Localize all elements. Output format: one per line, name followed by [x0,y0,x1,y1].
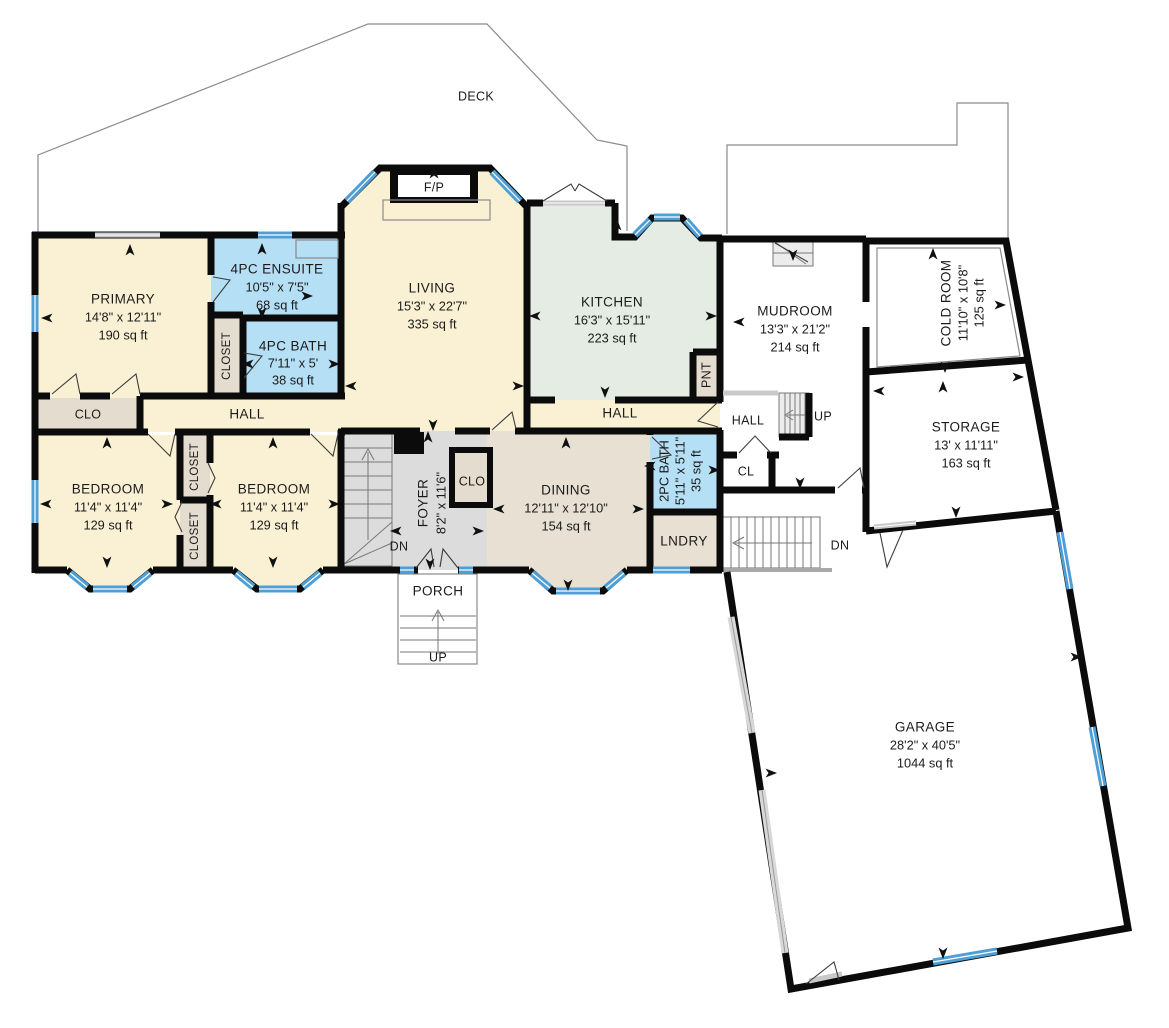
ext-dn-label: DN [831,538,850,552]
living-area: 335 sq ft [407,316,457,331]
direction-arrow [766,769,778,778]
deck-label: DECK [458,89,494,103]
bath4-name: 4PC BATH [259,339,327,354]
bath2-name: 2PC BATH [656,440,671,502]
bath4-dims: 7'11" x 5' [268,355,318,370]
direction-arrow [952,507,961,519]
hall-mud-label: HALL [732,413,764,427]
coldroom-dims: 11'10" x 10'8" [955,265,970,341]
mudroom-room [720,239,866,490]
garage-name: GARAGE [895,720,955,735]
mudroom-dims: 13'3" x 21'2" [760,321,830,336]
dining-dims: 12'11" x 12'10" [524,500,607,515]
cl-label: CL [738,464,755,478]
lndry-label: LNDRY [660,534,708,549]
porch-up-label: UP [429,650,447,664]
coldroom-name: COLD ROOM [939,260,954,347]
bedroom1-area: 129 sq ft [83,517,133,532]
storage-dims: 13' x 11'11" [934,437,998,452]
living-name: LIVING [409,281,456,296]
coldroom-area: 125 sq ft [971,278,986,328]
garage-dims: 28'2" x 40'5" [890,737,960,752]
direction-arrow [939,381,948,393]
bath4-area: 38 sq ft [272,372,314,387]
foyer-dims: 8'2" x 11'6" [433,472,448,534]
direction-arrow [873,387,885,396]
direction-arrow [929,248,938,260]
foyer-wall-chunk [394,432,424,454]
room-fills [35,168,866,591]
ensuite-area: 68 sq ft [256,297,298,312]
primary-name: PRIMARY [91,292,155,307]
mud-up-label: UP [814,409,832,423]
bath2-dims: 5'11" x 5'11" [672,437,687,505]
floor-plan: DECK PRIMARY 14'8" x 12'11" 190 sq ft 4P… [0,0,1169,1023]
porch-label: PORCH [413,584,464,599]
storage-area: 163 sq ft [941,455,991,470]
kitchen-dims: 16'3" x 15'11" [574,312,650,327]
closet-a-label: CLOSET [189,443,201,491]
ensuite-name: 4PC ENSUITE [231,262,324,277]
clo-primary-label: CLO [75,407,102,421]
mudroom-name: MUDROOM [757,304,833,319]
kitchen-area: 223 sq ft [587,330,637,345]
direction-arrow [1013,373,1025,382]
kitchen-name: KITCHEN [581,295,643,310]
mudroom-area: 214 sq ft [770,339,820,354]
pnt-label: PNT [699,362,713,388]
bedroom1-name: BEDROOM [72,482,145,497]
bedroom2-name: BEDROOM [238,482,311,497]
bedroom2-dims: 11'4" x 11'4" [240,499,308,514]
garage-area: 1044 sq ft [897,755,954,770]
storage-name: STORAGE [932,420,1001,435]
primary-dims: 14'8" x 12'11" [85,309,161,324]
fp-label: F/P [424,180,444,194]
floor-plan-page: DECK PRIMARY 14'8" x 12'11" 190 sq ft 4P… [0,0,1169,1023]
dining-area: 154 sq ft [541,518,591,533]
hall-left-label: HALL [229,407,264,422]
closet-b-label: CLOSET [189,512,201,560]
bath2-area: 35 sq ft [688,450,703,492]
foyer-dn-label: DN [390,539,409,553]
ensuite-dims: 10'5" x 7'5" [245,279,308,294]
dining-name: DINING [541,483,591,498]
hall-right-label: HALL [602,406,637,421]
closet-primary-label: CLOSET [221,332,233,380]
living-dims: 15'3" x 22'7" [397,298,467,313]
clo-foyer-label: CLO [459,474,486,488]
direction-arrow [995,301,1007,310]
foyer-name: FOYER [416,479,431,528]
bedroom1-dims: 11'4" x 11'4" [74,499,142,514]
bedroom2-area: 129 sq ft [249,517,299,532]
primary-area: 190 sq ft [98,327,148,342]
